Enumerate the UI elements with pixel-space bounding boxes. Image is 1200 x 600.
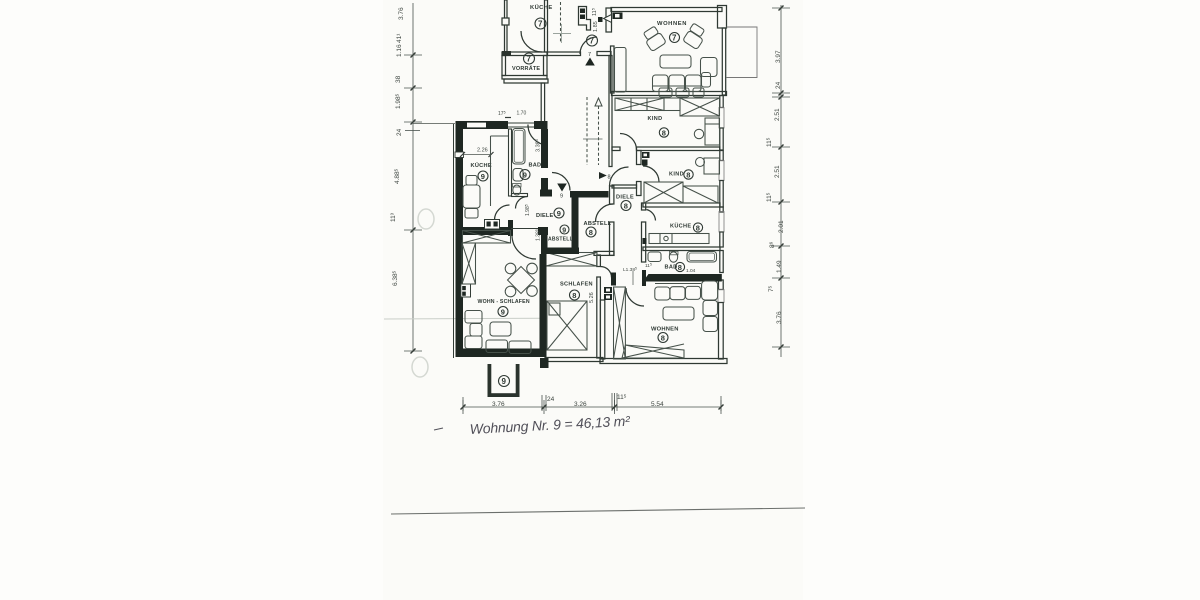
svg-text:5.26: 5.26 <box>589 292 595 303</box>
svg-text:1.70: 1.70 <box>517 111 527 117</box>
svg-text:9: 9 <box>562 228 566 235</box>
svg-text:9: 9 <box>523 171 527 180</box>
svg-text:KÜCHE: KÜCHE <box>670 223 691 230</box>
svg-text:8: 8 <box>589 228 593 237</box>
svg-text:3.76: 3.76 <box>398 7 405 20</box>
svg-text:7: 7 <box>672 34 677 43</box>
svg-text:WOHN - SCHLAFEN: WOHN - SCHLAFEN <box>478 299 530 305</box>
svg-text:1.85: 1.85 <box>593 21 599 32</box>
svg-text:7: 7 <box>588 52 591 58</box>
svg-text:2.26: 2.26 <box>477 148 488 154</box>
svg-text:7: 7 <box>527 55 532 64</box>
svg-text:2.51: 2.51 <box>774 165 781 178</box>
svg-text:ABSTELL: ABSTELL <box>548 237 573 243</box>
svg-text:2.51: 2.51 <box>774 108 781 121</box>
svg-text:11³: 11³ <box>390 212 397 222</box>
svg-text:3.76: 3.76 <box>492 401 505 408</box>
svg-text:KÜCHE: KÜCHE <box>530 4 553 11</box>
svg-text:7: 7 <box>538 20 543 29</box>
svg-text:8: 8 <box>696 224 700 233</box>
svg-text:VORRÄTE: VORRÄTE <box>512 65 540 72</box>
svg-text:WOHNEN: WOHNEN <box>651 327 679 333</box>
svg-text:9: 9 <box>481 172 485 181</box>
svg-text:KIND: KIND <box>648 116 663 122</box>
svg-text:9: 9 <box>502 377 507 386</box>
svg-text:9: 9 <box>557 209 561 218</box>
svg-text:38: 38 <box>395 75 402 83</box>
svg-text:24: 24 <box>547 396 555 403</box>
svg-text:8: 8 <box>678 263 682 272</box>
svg-text:24: 24 <box>396 128 403 136</box>
svg-text:SCHLAFEN: SCHLAFEN <box>560 282 593 288</box>
svg-text:9: 9 <box>501 308 505 317</box>
svg-text:24: 24 <box>775 81 782 89</box>
svg-text:8: 8 <box>661 334 665 343</box>
svg-text:ABSTELL: ABSTELL <box>584 221 612 227</box>
svg-text:2.01: 2.01 <box>778 220 785 233</box>
svg-text:8: 8 <box>572 291 576 300</box>
svg-text:KIND: KIND <box>669 172 684 178</box>
svg-text:8: 8 <box>662 129 666 138</box>
svg-text:3.26: 3.26 <box>574 401 587 408</box>
svg-text:3.76: 3.76 <box>776 311 783 324</box>
svg-text:5.54: 5.54 <box>651 401 664 408</box>
svg-text:8: 8 <box>686 171 690 180</box>
svg-text:9: 9 <box>560 194 563 200</box>
svg-text:L1.385: L1.385 <box>623 267 637 274</box>
svg-text:1.49: 1.49 <box>776 260 783 273</box>
svg-text:KÜCHE: KÜCHE <box>471 162 492 169</box>
svg-text:BAD: BAD <box>529 163 542 169</box>
svg-text:WOHNEN: WOHNEN <box>657 21 687 27</box>
svg-text:7: 7 <box>590 37 595 46</box>
svg-text:DIELE: DIELE <box>616 195 634 201</box>
svg-text:8: 8 <box>624 202 628 211</box>
svg-text:3.97: 3.97 <box>775 50 782 63</box>
svg-text:DIELE: DIELE <box>536 213 554 219</box>
svg-text:1.16 41¹: 1.16 41¹ <box>396 33 403 57</box>
svg-text:1.04: 1.04 <box>686 268 696 274</box>
svg-text:8: 8 <box>608 175 611 181</box>
